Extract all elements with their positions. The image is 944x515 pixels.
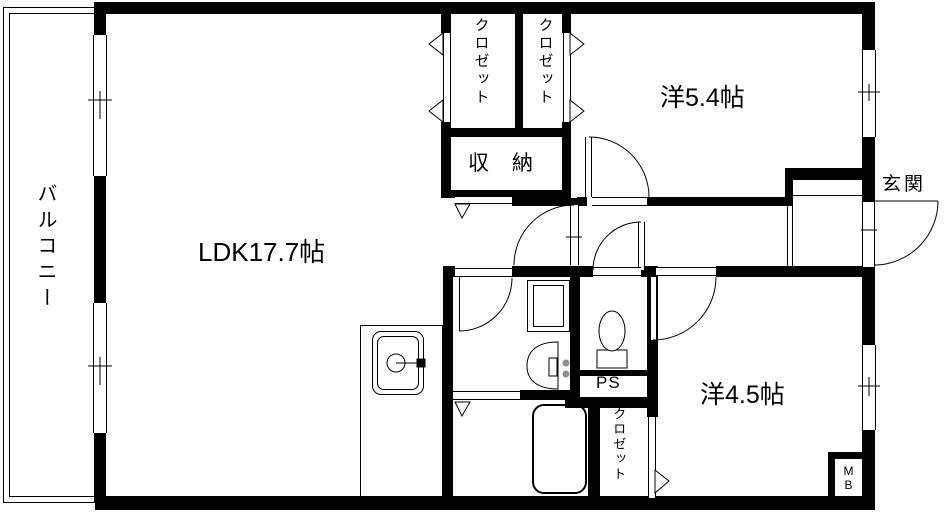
- sink-faucet-base: [417, 359, 425, 367]
- vanity-knob: [563, 360, 570, 367]
- vanity-knobs: [563, 360, 570, 378]
- room-label-storage: 収 納: [468, 152, 534, 175]
- closet-left-door-triangle: [429, 100, 443, 122]
- storage-door-triangle: [455, 204, 470, 218]
- toilet-tank: [597, 350, 627, 368]
- bathroom-door-triangle: [455, 402, 470, 416]
- room-label-closet-top-left: クロゼット: [472, 17, 489, 127]
- closet-bottom-door-triangle: [655, 470, 669, 493]
- washroom-door-arc: [459, 278, 512, 331]
- room-label-bedroom1: 洋5.4帖: [660, 85, 745, 113]
- toilet-bowl: [599, 311, 625, 351]
- vanity-faucet: [549, 358, 557, 376]
- closet-left-door-triangle: [429, 33, 443, 55]
- bedroom2-door-arc: [653, 277, 716, 340]
- floor-plan: M B: [0, 0, 944, 515]
- vanity-knob: [563, 371, 570, 378]
- closet-right-door-triangle: [570, 33, 584, 55]
- closet-right-door-triangle: [570, 100, 584, 122]
- room-label-ldk: LDK17.7帖: [198, 238, 325, 267]
- room-label-entrance: 玄関: [882, 175, 926, 196]
- bedroom1-door-arc: [589, 137, 649, 197]
- room-label-balcony: バルコニー: [34, 183, 56, 333]
- room-label-closet-top-right: クロゼット: [536, 17, 553, 127]
- entrance-door-arc: [875, 201, 938, 265]
- room-label-closet-bottom: クロゼット: [611, 407, 625, 499]
- room-label-pipe-space: PS: [596, 374, 621, 393]
- toilet-door-arc: [593, 222, 641, 270]
- ldk-hall-door-arc: [514, 205, 574, 265]
- room-label-bedroom2: 洋4.5帖: [700, 382, 785, 410]
